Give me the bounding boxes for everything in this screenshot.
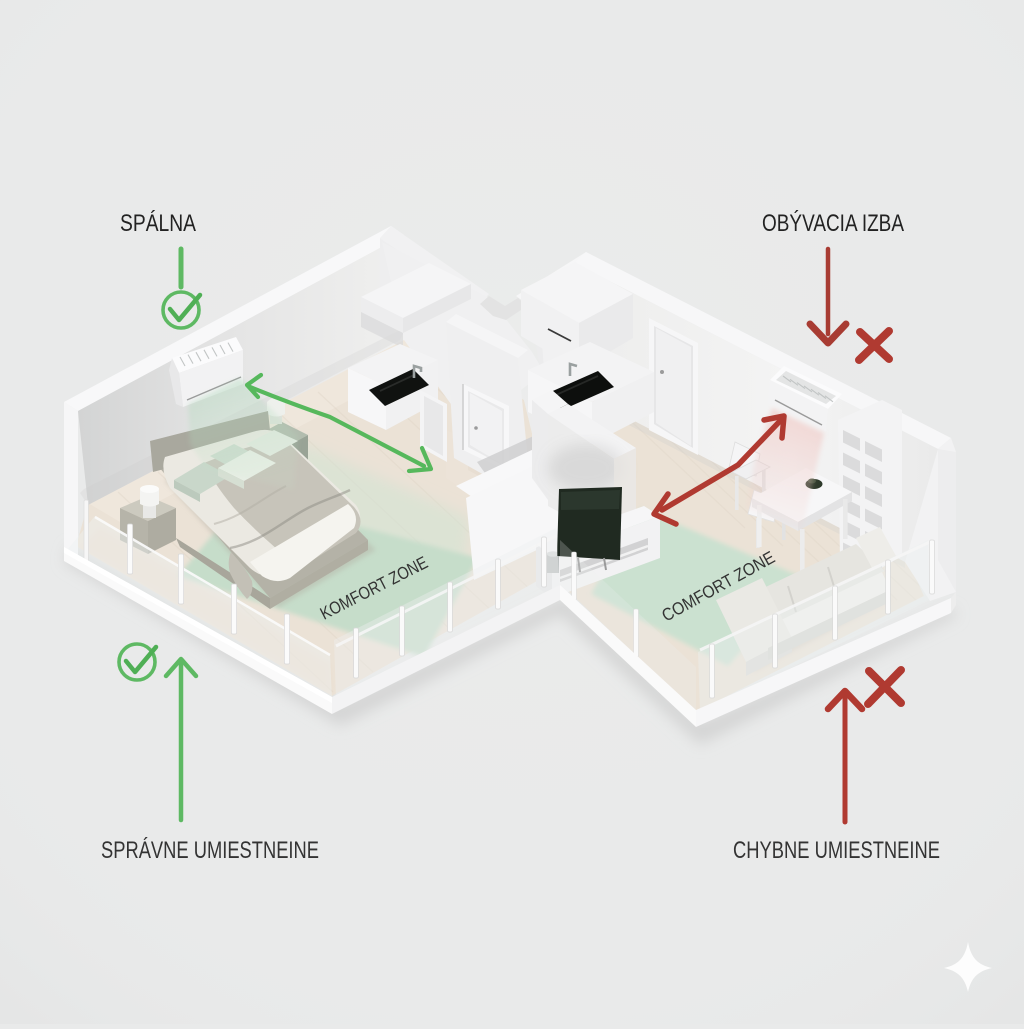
- svg-text:OBÝVACIA IZBA: OBÝVACIA IZBA: [762, 210, 904, 237]
- svg-text:CHYBNE UMIESTNEINE: CHYBNE UMIESTNEINE: [733, 837, 940, 864]
- svg-text:SPÁLNA: SPÁLNA: [120, 210, 196, 237]
- svg-text:SPRÁVNE UMIESTNEINE: SPRÁVNE UMIESTNEINE: [101, 837, 319, 864]
